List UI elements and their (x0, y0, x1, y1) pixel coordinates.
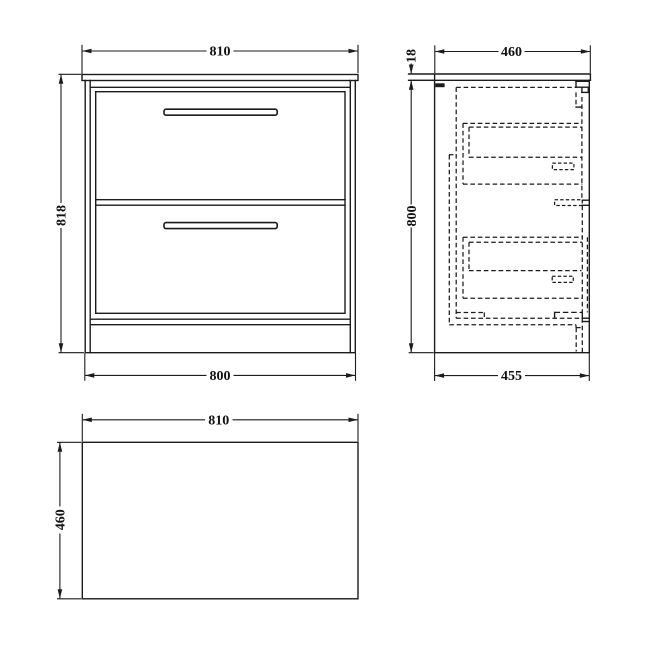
svg-text:460: 460 (501, 45, 522, 60)
svg-text:800: 800 (210, 369, 231, 384)
svg-text:18: 18 (404, 49, 419, 63)
svg-text:810: 810 (208, 413, 229, 428)
svg-text:800: 800 (405, 206, 420, 227)
svg-text:460: 460 (53, 509, 68, 530)
svg-text:818: 818 (55, 205, 70, 226)
svg-text:810: 810 (210, 45, 231, 60)
svg-text:455: 455 (501, 369, 522, 384)
